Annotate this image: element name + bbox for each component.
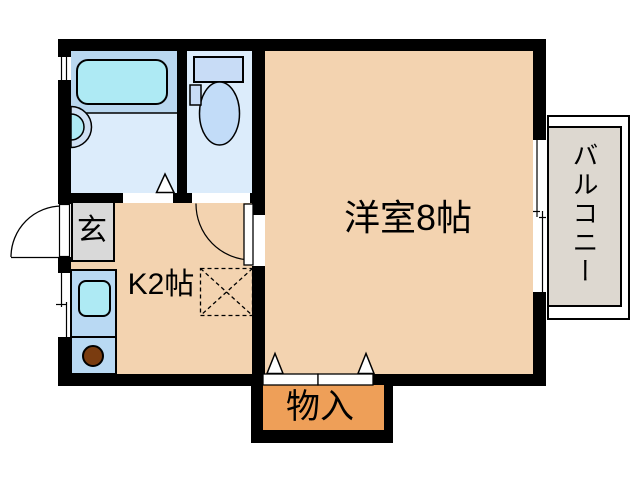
entrance-door-icon: [11, 205, 70, 258]
kitchen-sink-icon: [79, 281, 110, 316]
storage-door-panels: [263, 374, 373, 385]
balcony-window-icon: [533, 140, 546, 292]
bathroom-door-triangle-icon: [157, 174, 175, 193]
storage-label: 物入: [286, 390, 354, 424]
toilet-paper-holder-icon: [190, 85, 201, 105]
western-room-label: 洋室8帖: [344, 200, 472, 236]
bathtub-icon: [77, 60, 167, 104]
storage-door-triangle-left-icon: [267, 354, 283, 374]
toilet-bowl-icon: [200, 82, 240, 145]
toilet-tank-icon: [194, 57, 243, 82]
appliance-space-icon: [201, 269, 253, 316]
stove-burner-icon: [83, 346, 103, 366]
bathroom-window-icon: [62, 57, 67, 80]
balcony-label: バルコニー: [571, 142, 597, 287]
kitchen-label: K2帖: [128, 270, 195, 300]
floorplan-canvas: 洋室8帖 K2帖 玄 物入 バルコニー: [0, 0, 638, 480]
kitchen-window-icon: [56, 273, 67, 337]
toilet-door-icon: [196, 204, 253, 266]
entrance-label: 玄: [77, 216, 107, 246]
storage-door-triangle-right-icon: [358, 354, 374, 374]
